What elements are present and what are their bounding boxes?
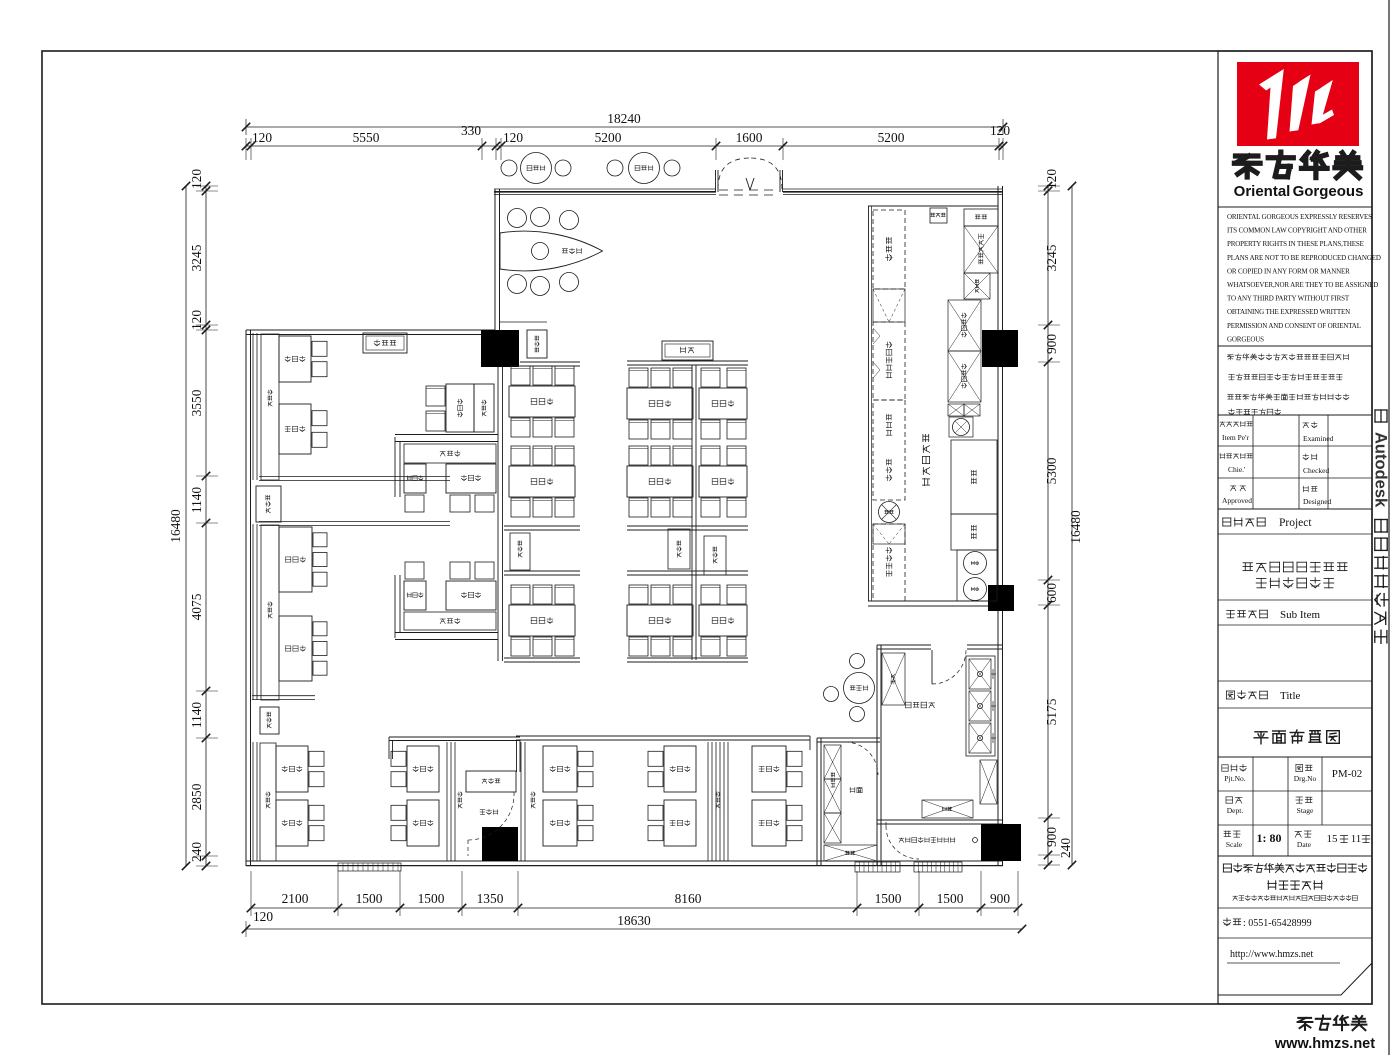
svg-text:PLANS ARE NOT TO BE REPRODUCED: PLANS ARE NOT TO BE REPRODUCED CHANGED [1227, 254, 1381, 262]
svg-text:1600: 1600 [736, 130, 763, 145]
svg-text:OBTAINING THE EXPRESSED WRITTE: OBTAINING THE EXPRESSED WRITTEN [1227, 308, 1350, 316]
svg-text:Chie.': Chie.' [1228, 465, 1246, 474]
svg-text:GORGEOUS: GORGEOUS [1227, 335, 1264, 343]
svg-text:Examined: Examined [1303, 434, 1334, 443]
svg-text:Drg.No: Drg.No [1294, 774, 1317, 783]
svg-text:3245: 3245 [1044, 244, 1059, 271]
svg-text:5175: 5175 [1044, 698, 1059, 725]
svg-text:Gorgeous: Gorgeous [1293, 183, 1364, 200]
svg-text:Approved: Approved [1222, 496, 1252, 505]
svg-text:18630: 18630 [617, 913, 651, 928]
svg-text:Pjt.No.: Pjt.No. [1224, 774, 1245, 783]
svg-text:16480: 16480 [168, 509, 183, 543]
svg-text:2100: 2100 [282, 891, 309, 906]
svg-text:Item Pe'r: Item Pe'r [1222, 433, 1249, 442]
svg-text:18240: 18240 [607, 111, 641, 126]
svg-text:Autodesk: Autodesk [1372, 432, 1390, 508]
svg-text:Project: Project [1279, 517, 1312, 529]
svg-text:3245: 3245 [189, 244, 204, 271]
svg-text:900: 900 [1044, 827, 1059, 847]
svg-text:900: 900 [1044, 334, 1059, 354]
svg-text:Scale: Scale [1226, 840, 1243, 849]
svg-text:11: 11 [1351, 833, 1362, 845]
svg-text:ORIENTAL GORGEOUS EXPRESSLY RE: ORIENTAL GORGEOUS EXPRESSLY RESERVES [1227, 213, 1372, 221]
svg-text:Designed: Designed [1303, 497, 1332, 506]
svg-text:1350: 1350 [477, 891, 504, 906]
svg-text:900: 900 [990, 891, 1010, 906]
svg-text:TO ANY THIRD PARTY WITHOUT FIR: TO ANY THIRD PARTY WITHOUT FIRST [1227, 295, 1350, 303]
svg-text:120: 120 [1044, 169, 1059, 189]
svg-text:OR COPIED IN ANY FORM OR MANNE: OR COPIED IN ANY FORM OR MANNER [1227, 267, 1350, 275]
svg-text:120: 120 [503, 130, 523, 145]
svg-text:www.hmzs.net: www.hmzs.net [1274, 1036, 1375, 1052]
svg-text:2850: 2850 [189, 783, 204, 810]
svg-text:1: 80: 1: 80 [1257, 831, 1282, 845]
svg-text:Dept.: Dept. [1227, 806, 1244, 815]
svg-text:15: 15 [1327, 833, 1339, 845]
svg-text:1500: 1500 [875, 891, 902, 906]
svg-text:8160: 8160 [675, 891, 702, 906]
svg-text:PERMISSION AND CONSENT OF ORIE: PERMISSION AND CONSENT OF ORIENTAL [1227, 322, 1361, 330]
svg-text:120: 120 [189, 310, 204, 330]
svg-text:Stage: Stage [1297, 806, 1314, 815]
svg-text:1500: 1500 [937, 891, 964, 906]
svg-text:Checked: Checked [1303, 466, 1329, 475]
svg-text:Date: Date [1297, 840, 1312, 849]
svg-text:5550: 5550 [353, 130, 380, 145]
svg-text:WHATSOEVER,NOR ARE THEY TO BE: WHATSOEVER,NOR ARE THEY TO BE ASSIGNED [1227, 281, 1378, 289]
svg-text:1140: 1140 [189, 487, 204, 514]
svg-text:120: 120 [189, 169, 204, 189]
svg-text:3550: 3550 [189, 389, 204, 416]
svg-text:http://www.hmzs.net: http://www.hmzs.net [1230, 949, 1313, 960]
svg-text:5200: 5200 [878, 130, 905, 145]
svg-text:240: 240 [189, 842, 204, 862]
svg-text:5200: 5200 [595, 130, 622, 145]
svg-text:Sub Item: Sub Item [1280, 609, 1320, 621]
svg-text:PM-02: PM-02 [1332, 768, 1363, 780]
svg-text:1500: 1500 [356, 891, 383, 906]
svg-text:330: 330 [461, 123, 481, 138]
svg-text:16480: 16480 [1068, 510, 1083, 544]
svg-text:5300: 5300 [1044, 457, 1059, 484]
svg-text:PROPERTY RIGHTS IN THESE PLANS: PROPERTY RIGHTS IN THESE PLANS,THESE [1227, 240, 1364, 248]
svg-text:Title: Title [1280, 690, 1301, 702]
svg-text:240: 240 [1058, 838, 1073, 858]
svg-text:120: 120 [253, 909, 273, 924]
svg-text:120: 120 [990, 123, 1010, 138]
svg-text:1500: 1500 [418, 891, 445, 906]
svg-text:ITS COMMON LAW COPYRIGHT AND O: ITS COMMON LAW COPYRIGHT AND OTHER [1227, 227, 1367, 235]
svg-text:4075: 4075 [189, 593, 204, 620]
svg-text:120: 120 [252, 130, 272, 145]
svg-text:600: 600 [1044, 583, 1059, 603]
svg-text:1140: 1140 [189, 702, 204, 729]
svg-text:: 0551-65428999: : 0551-65428999 [1243, 918, 1312, 929]
svg-text:Oriental: Oriental [1234, 183, 1291, 200]
